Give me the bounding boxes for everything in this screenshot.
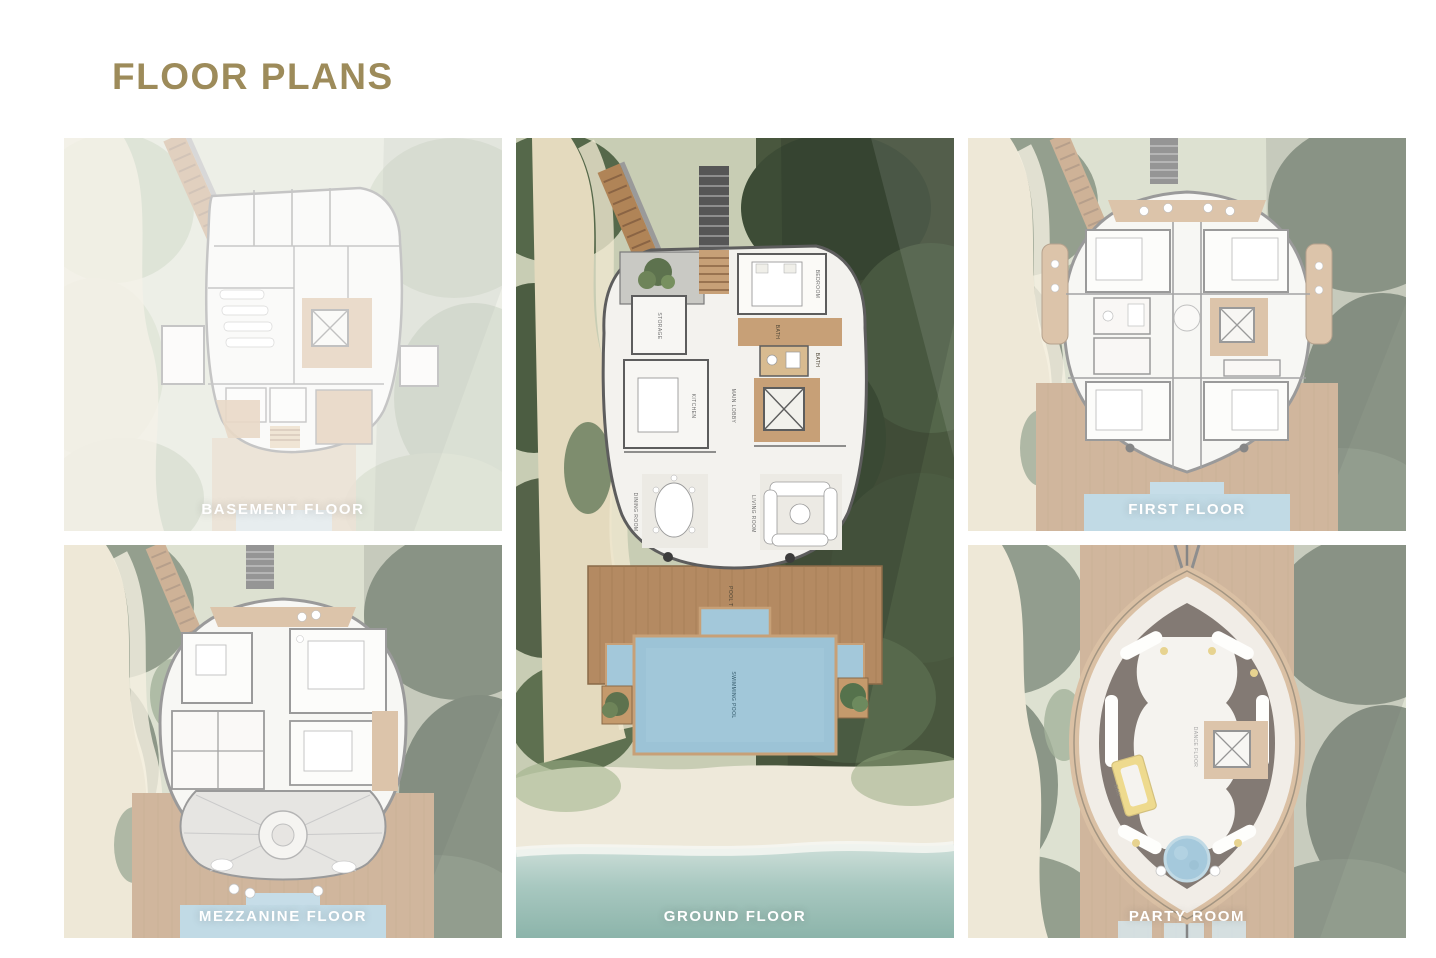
storage-label: STORAGE (656, 312, 662, 339)
villa-storage: STORAGE (632, 296, 686, 354)
kitchen-label: KITCHEN (690, 394, 696, 419)
villa-stairwell (699, 250, 729, 294)
floor-plan-ground-tile[interactable]: POOL TERRACE SWIMMING POOL (516, 138, 954, 938)
villa-bedroom: BEDROOM (738, 254, 826, 314)
dining-room-label: DINING ROOM (632, 493, 638, 532)
first-stairs (1150, 138, 1178, 184)
basement-floor-plan-image (64, 138, 502, 531)
floor-plan-basement-tile[interactable]: BASEMENT FLOOR (64, 138, 502, 531)
villa-kitchen: KITCHEN (624, 360, 708, 448)
bedroom-label: BEDROOM (814, 270, 820, 299)
ground-villa: BEDROOM BATH BATH STORAGE KIT (603, 246, 866, 568)
floor-plans-page: FLOOR PLANS (0, 0, 1436, 958)
first-floor-plan-image (968, 138, 1406, 531)
party-side-table (1156, 866, 1166, 876)
mezzanine-round-terrace (181, 791, 386, 880)
bath-room-label: BATH (814, 353, 820, 368)
dance-floor-label: DANCE FLOOR (1192, 727, 1198, 768)
ground-entry-stairs (699, 166, 729, 254)
floor-plan-mezzanine-tile[interactable]: MEZZANINE FLOOR (64, 545, 502, 938)
party-side-table (1210, 866, 1220, 876)
first-villa (1042, 192, 1332, 472)
villa-dining-room: DINING ROOM (632, 474, 708, 548)
party-jacuzzi-pool (1165, 837, 1209, 881)
party-elevator (1204, 721, 1268, 779)
party-room-plan-image: BAR DANCE FLOOR (968, 545, 1406, 938)
bath-hall-label: BATH (774, 325, 780, 340)
swimming-pool-label: SWIMMING POOL (730, 671, 736, 718)
mezzanine-villa (160, 599, 406, 898)
terrace-planter-left (602, 686, 632, 724)
basement-elevator (302, 298, 372, 368)
main-lobby-label: MAIN LOBBY (730, 389, 736, 424)
terrace-palm-right (838, 678, 868, 718)
living-room-label: LIVING ROOM (750, 495, 756, 533)
villa-elevator (754, 378, 820, 442)
floor-plan-party-tile[interactable]: BAR DANCE FLOOR PARTY ROOM (968, 545, 1406, 938)
page-title: FLOOR PLANS (112, 56, 394, 98)
first-elevator (1210, 298, 1268, 356)
villa-living-room: LIVING ROOM (750, 474, 842, 550)
ground-floor-plan-image: POOL TERRACE SWIMMING POOL (516, 138, 954, 938)
floor-plan-first-tile[interactable]: FIRST FLOOR (968, 138, 1406, 531)
mezzanine-floor-plan-image (64, 545, 502, 938)
mezzanine-stairs (246, 545, 274, 589)
ground-foam-and-ocean (516, 844, 954, 938)
